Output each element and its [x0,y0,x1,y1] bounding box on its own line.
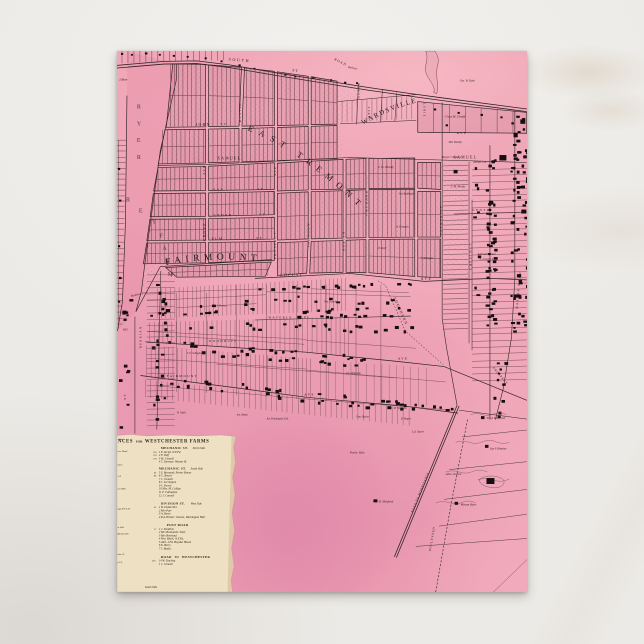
svg-text:A. Dongan: A. Dongan [395,224,409,228]
svg-text:ELM: ELM [212,236,224,240]
svg-text:Thos Minford: Thos Minford [486,416,505,420]
svg-text:Jas Bathgate: Jas Bathgate [399,191,415,195]
svg-text:TO: TO [175,556,179,559]
svg-text:R: R [137,104,141,110]
svg-text:T. O Callaghan: T. O Callaghan [187,352,204,355]
svg-text:J. E. Purdy: J. E. Purdy [378,165,394,169]
svg-text:NORTH: NORTH [356,81,360,98]
svg-text:GROVE: GROVE [203,222,207,241]
svg-text:WAVERLY: WAVERLY [268,315,292,319]
svg-text:RUSTIC: RUSTIC [238,102,242,122]
svg-text:North Side: North Side [192,446,206,450]
svg-text:P. Sharpe: P. Sharpe [393,406,407,410]
svg-text:Store: Store [117,463,123,466]
svg-text:E: E [137,138,141,144]
svg-text:ST: ST [292,68,299,73]
svg-text:st Side: st Side [117,526,124,529]
svg-text:Hiram Barr: Hiram Barr [460,502,478,506]
svg-text:Jos. Delmonte: Jos. Delmonte [346,372,362,375]
svg-text:Adelaide Hotel: Adelaide Hotel [477,252,496,256]
svg-text:ST: ST [259,212,266,216]
svg-text:Jas. Pennington Schl.: Jas. Pennington Schl. [266,417,289,420]
svg-text:J. Bathgate: J. Bathgate [421,257,434,260]
svg-text:AVE: AVE [202,164,206,174]
svg-text:AVE: AVE [398,357,409,361]
svg-text:P. Minford: P. Minford [378,499,394,503]
svg-text:West Side: West Side [191,501,203,505]
svg-text:Mrs Wendly: Mrs Wendly [448,141,463,144]
svg-text:L.d. Sayer: L.d. Sayer [411,429,425,433]
svg-text:OAK: OAK [213,187,225,191]
svg-text:y Fd.: y Fd. [117,561,123,564]
svg-text:J. Purroy: J. Purroy [217,304,228,307]
svg-text:WOODRUFF: WOODRUFF [209,339,238,343]
svg-text:D. Mapes: D. Mapes [400,417,411,420]
svg-text:FOR: FOR [136,439,143,443]
svg-text:Chas H. Dodd: Chas H. Dodd [445,114,466,118]
svg-text:SAMUEL: SAMUEL [218,156,242,160]
svg-text:ST: ST [221,122,228,126]
svg-text:12 J. Connell: 12 J. Connell [159,493,175,497]
svg-text:. Side: . Side [117,438,123,441]
svg-text:CEDAR: CEDAR [214,213,233,217]
svg-text:R: R [137,155,141,161]
svg-text:nge.W.F.S.H.: nge.W.F.S.H. [117,507,130,510]
svg-text:Blacksmith: Blacksmith [117,532,129,535]
svg-text:LOCUST: LOCUST [280,273,303,277]
svg-text:ST: ST [123,393,127,399]
svg-text:7 J. Banks: 7 J. Banks [159,546,172,550]
svg-text:Wm. Fanning: Wm. Fanning [324,300,339,303]
svg-text:J. H. Purdy: J. H. Purdy [451,185,466,189]
svg-text:Mill: Mill [122,328,128,331]
svg-text:AVE: AVE [457,131,468,135]
svg-text:FAIRMOUNT: FAIRMOUNT [167,374,198,378]
svg-text:rms Hotel: rms Hotel [117,450,127,453]
svg-text:South Side: South Side [145,585,158,589]
svg-text:R: R [126,197,130,203]
svg-text:ner Mill: ner Mill [117,487,125,490]
svg-text:.14.: .14. [117,475,121,478]
svg-text:AVE: AVE [304,392,315,396]
svg-text:PL: PL [304,315,310,319]
svg-text:BERRIAN: BERRIAN [138,325,142,348]
svg-text:J.Ryer: J.Ryer [119,78,128,82]
svg-text:Geo. W. Dash: Geo. W. Dash [460,80,476,83]
svg-text:AUSTIN: AUSTIN [341,230,345,251]
svg-text:rker H.: rker H. [117,553,125,556]
svg-text:Y: Y [137,121,142,127]
svg-text:Paile Vale: Paile Vale [349,450,365,454]
svg-text:WESTCHESTER FARMS: WESTCHESTER FARMS [145,439,209,444]
svg-text:Meyer Chapley: Meyer Chapley [441,155,462,159]
svg-text:AVE: AVE [421,277,432,281]
svg-text:FIRST: FIRST [423,101,427,116]
svg-text:ORCHARD: ORCHARD [365,189,369,215]
svg-text:ST: ST [256,236,263,240]
svg-text:Alex. Inslee: Alex. Inslee [445,472,462,476]
svg-text:Jas S Hunter: Jas S Hunter [489,446,507,450]
svg-text:4 J. Downey: Weaver H.: 4 J. Downey: Weaver H. [159,459,187,463]
svg-text:JOHN: JOHN [196,123,211,127]
svg-text:4 P.A. Hunter: Saloon, Washin: 4 P.A. Hunter: Saloon, Washington Hall [159,515,205,519]
svg-text:CATHERINE: CATHERINE [439,204,443,235]
svg-text:E: E [139,208,143,214]
svg-text:WESTCHESTER: WESTCHESTER [182,555,211,559]
svg-text:ST: ST [257,187,264,191]
svg-text:S. Lawton Prop: S. Lawton Prop [479,257,498,261]
svg-text:PROSPECT: PROSPECT [273,231,277,259]
svg-text:WEST: WEST [368,105,371,118]
svg-text:CHESTNUT: CHESTNUT [469,242,473,270]
svg-text:W. Odell: W. Odell [177,411,186,414]
svg-text:P. Kiely: P. Kiely [377,247,387,250]
svg-text:AVE: AVE [273,165,277,175]
svg-text:JOHNSON: JOHNSON [307,222,311,247]
svg-text:Presb. Ch.: Presb. Ch. [473,160,488,164]
svg-text:South Side: South Side [191,466,204,470]
svg-text:Jno. Banta: Jno. Banta [237,413,249,416]
svg-text:1 J. Connell: 1 J. Connell [159,562,173,566]
svg-text:Com. Baxter: Com. Baxter [356,415,370,418]
